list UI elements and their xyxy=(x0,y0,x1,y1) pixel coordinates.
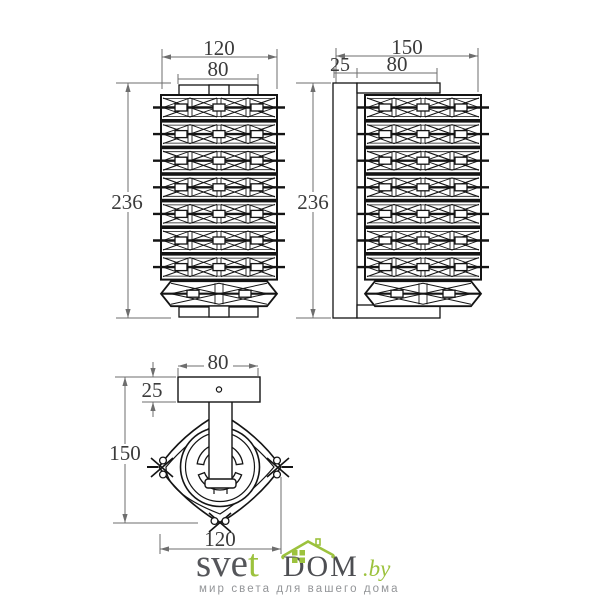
side-view: 150 25 80 236 xyxy=(296,35,489,318)
crystal-band xyxy=(153,122,285,147)
dim-top-mount-width: 80 xyxy=(208,350,229,374)
stem-fill xyxy=(209,402,232,480)
crystal-band xyxy=(357,148,489,173)
crystal-band xyxy=(357,175,489,200)
crystal-band xyxy=(357,95,489,120)
crystal-band xyxy=(153,175,285,200)
crystal-band xyxy=(153,201,285,226)
wall-plate xyxy=(333,83,357,318)
diagram-canvas: svetDOM.by мир света для вашего дома xyxy=(0,0,600,600)
crystal-band xyxy=(153,95,285,120)
crystal-band xyxy=(153,228,285,253)
crystal-band xyxy=(153,148,285,173)
front-lamp-body xyxy=(153,85,285,317)
dim-side-height: 236 xyxy=(297,190,329,214)
stem-crossbar xyxy=(205,479,236,488)
crystal-band xyxy=(357,122,489,147)
front-view: 120 80 236 xyxy=(110,36,285,318)
technical-drawing: 120 80 236 xyxy=(0,0,600,600)
dim-side-body-offset: 80 xyxy=(387,52,408,76)
crystal-band xyxy=(357,201,489,226)
dim-front-height: 236 xyxy=(111,190,143,214)
dim-side-plate-depth: 25 xyxy=(330,54,350,76)
side-lamp-body xyxy=(333,83,489,318)
crystal-band xyxy=(357,255,489,280)
top-view: 80 25 150 120 xyxy=(108,350,293,554)
dim-top-body-width: 120 xyxy=(204,527,236,551)
top-lamp-body xyxy=(147,402,293,532)
dim-front-mount-width: 80 xyxy=(208,57,229,81)
top-bracket xyxy=(357,83,440,93)
mount-hole xyxy=(216,387,221,392)
dim-top-plate-depth: 25 xyxy=(142,378,163,402)
crystal-band-bottom xyxy=(161,281,277,306)
crystal-band xyxy=(153,255,285,280)
dim-top-total-depth: 150 xyxy=(109,441,141,465)
crystal-band-bottom xyxy=(365,281,481,306)
crystal-band xyxy=(357,228,489,253)
